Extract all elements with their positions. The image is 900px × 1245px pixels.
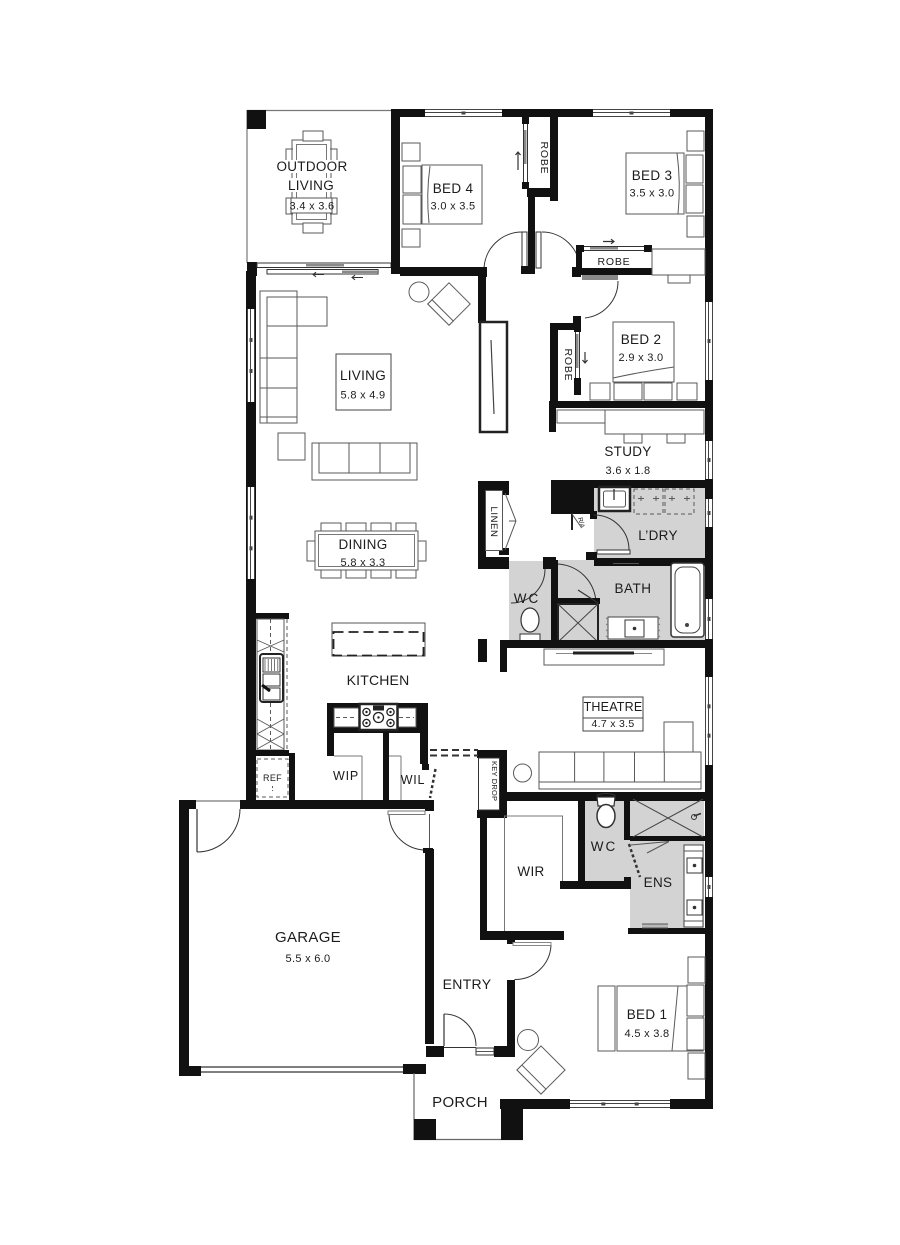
svg-text:THEATRE: THEATRE [584,700,643,714]
svg-text:WIL: WIL [401,773,426,787]
svg-text:KEY DROP: KEY DROP [490,761,499,801]
svg-text:BED 4: BED 4 [433,181,474,196]
svg-text:4.7 x 3.5: 4.7 x 3.5 [592,718,635,730]
svg-text:DINING: DINING [338,537,387,552]
svg-text:GARAGE: GARAGE [275,929,341,946]
svg-text:WC: WC [514,591,541,606]
svg-text:ROBE: ROBE [538,142,550,175]
svg-text:WC: WC [591,839,618,854]
svg-text:3.4 x 3.6: 3.4 x 3.6 [290,201,335,213]
svg-text:BATH: BATH [614,581,651,596]
svg-text:5.5 x 6.0: 5.5 x 6.0 [286,953,331,965]
svg-text:5.8 x 3.3: 5.8 x 3.3 [341,557,386,569]
svg-text:ENTRY: ENTRY [443,976,492,992]
svg-text:WIP: WIP [333,769,359,783]
svg-text:BED 2: BED 2 [621,332,662,347]
svg-text:ENS: ENS [644,875,673,890]
svg-text:STUDY: STUDY [604,444,651,459]
svg-text:4.5 x 3.8: 4.5 x 3.8 [625,1028,670,1040]
svg-text:L’DRY: L’DRY [638,528,678,543]
svg-text:OUTDOOR: OUTDOOR [276,159,347,174]
svg-text:REF: REF [263,773,282,783]
svg-text:5.8 x 4.9: 5.8 x 4.9 [341,390,386,402]
svg-text:WIR: WIR [517,864,544,879]
svg-text:ROBE: ROBE [598,256,631,268]
svg-text:3.6 x 1.8: 3.6 x 1.8 [606,465,651,477]
svg-text:PORCH: PORCH [432,1094,488,1111]
svg-text:ROBE: ROBE [562,349,574,382]
svg-text:BED 1: BED 1 [627,1007,668,1022]
svg-text:LIVING: LIVING [288,178,334,193]
svg-text:3.5 x 3.0: 3.5 x 3.0 [630,188,675,200]
svg-text:3.0 x 3.5: 3.0 x 3.5 [431,201,476,213]
svg-text:LINEN: LINEN [488,507,499,538]
svg-text:BED 3: BED 3 [632,168,673,183]
svg-text:KITCHEN: KITCHEN [347,672,410,688]
svg-text:2.9 x 3.0: 2.9 x 3.0 [619,352,664,364]
svg-text:LIVING: LIVING [340,368,386,383]
